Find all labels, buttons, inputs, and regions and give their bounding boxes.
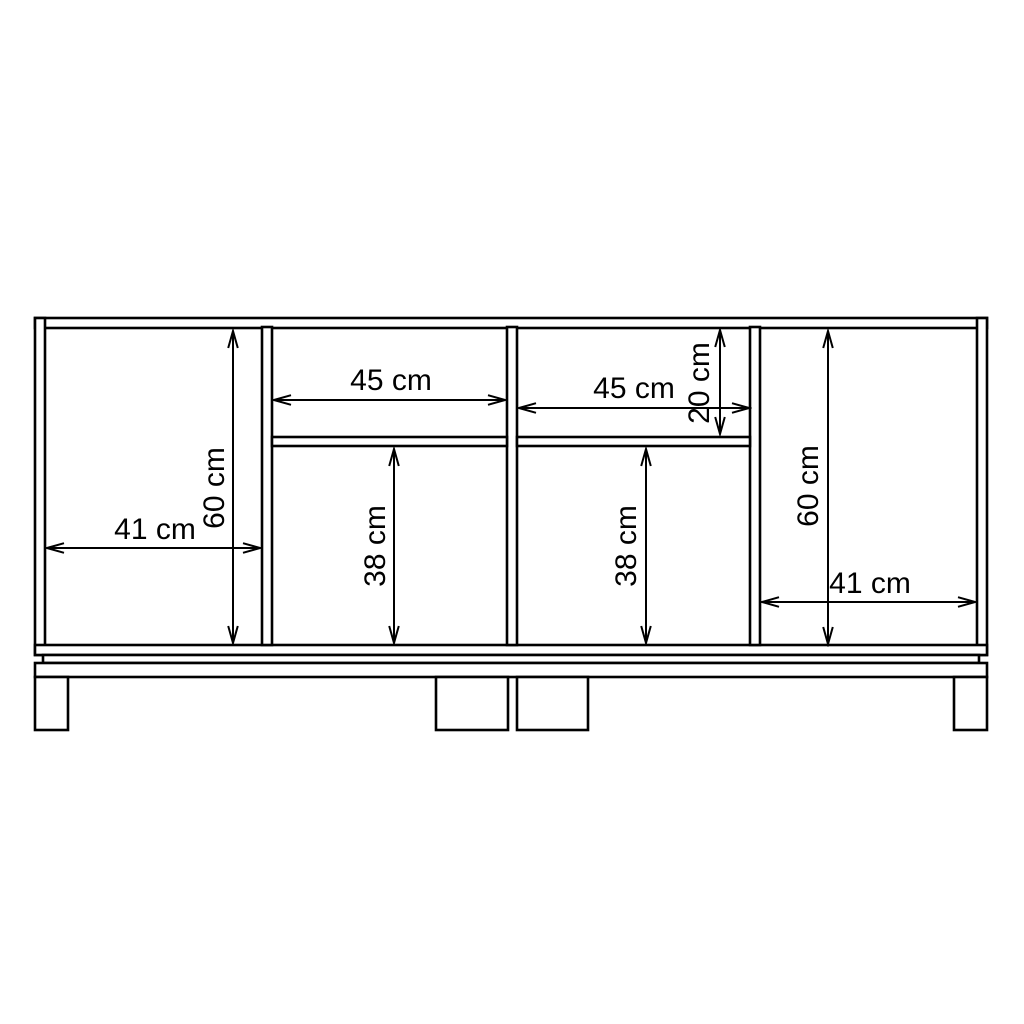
- dim-label-right-width: 41 cm: [829, 569, 911, 599]
- cabinet-line-drawing: [0, 0, 1024, 1024]
- dim-label-left-height: 60 cm: [200, 447, 230, 529]
- left-side-panel: [35, 318, 45, 655]
- leg-front-right: [954, 677, 987, 730]
- dim-label-right-height: 60 cm: [794, 445, 824, 527]
- dim-label-upper-right-niche-width: 45 cm: [593, 374, 675, 404]
- shelf-left: [272, 437, 507, 446]
- divider-center: [507, 327, 517, 645]
- dim-label-lower-left-height: 38 cm: [361, 505, 391, 587]
- leg-center-left: [436, 677, 508, 730]
- leg-center-right: [517, 677, 588, 730]
- bottom-panel: [35, 645, 987, 655]
- dimension-diagram: 41 cm 60 cm 45 cm 38 cm 45 cm 20 cm 38 c…: [0, 0, 1024, 1024]
- divider-right: [750, 327, 760, 645]
- base-rail: [35, 663, 987, 677]
- leg-front-left: [35, 677, 68, 730]
- right-side-panel: [977, 318, 987, 655]
- dim-label-upper-left-niche-width: 45 cm: [350, 366, 432, 396]
- shelf-right: [517, 437, 750, 446]
- dim-label-lower-right-height: 38 cm: [612, 505, 642, 587]
- dim-label-niche-height: 20 cm: [685, 342, 715, 424]
- dim-label-left-width: 41 cm: [114, 515, 196, 545]
- divider-left: [262, 327, 272, 645]
